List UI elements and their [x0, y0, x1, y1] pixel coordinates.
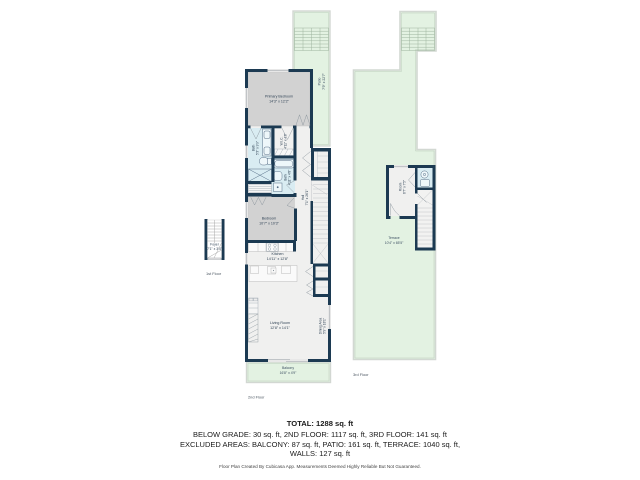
- svg-text:7'1" x 26'1": 7'1" x 26'1": [305, 190, 309, 206]
- svg-text:Balcony: Balcony: [282, 366, 294, 370]
- svg-text:16'8" x 4'9": 16'8" x 4'9": [280, 371, 298, 375]
- svg-text:Living Room: Living Room: [270, 321, 290, 325]
- svg-text:5'3" x 9'9": 5'3" x 9'9": [256, 141, 260, 155]
- svg-text:Terrace: Terrace: [388, 236, 399, 240]
- svg-text:Bedroom: Bedroom: [262, 217, 277, 221]
- svg-text:5'9" x 18'1": 5'9" x 18'1": [323, 318, 327, 334]
- svg-text:10'7" x 10'3": 10'7" x 10'3": [259, 222, 279, 226]
- svg-text:4'11" x 4'8": 4'11" x 4'8": [288, 170, 292, 185]
- svg-text:Patio: Patio: [318, 78, 322, 86]
- svg-text:10'4" x 65'5": 10'4" x 65'5": [385, 241, 404, 245]
- svg-text:1st Floor: 1st Floor: [206, 271, 222, 276]
- svg-text:12'8" x 14'1": 12'8" x 14'1": [270, 326, 290, 330]
- svg-text:Foyer: Foyer: [210, 243, 220, 247]
- svg-text:14'11" x 12'8": 14'11" x 12'8": [267, 257, 289, 261]
- svg-text:2nd Floor: 2nd Floor: [248, 395, 265, 400]
- svg-text:6'7" x 7'5": 6'7" x 7'5": [403, 180, 407, 194]
- svg-text:Primary Bedroom: Primary Bedroom: [265, 95, 293, 99]
- svg-text:14'3" x 12'2": 14'3" x 12'2": [269, 100, 289, 104]
- svg-text:7'1" x 3'4": 7'1" x 3'4": [207, 247, 223, 251]
- svg-text:3rd Floor: 3rd Floor: [353, 372, 369, 377]
- svg-text:7'9" x 22'7": 7'9" x 22'7": [322, 72, 326, 90]
- svg-text:Kitchen: Kitchen: [272, 252, 284, 256]
